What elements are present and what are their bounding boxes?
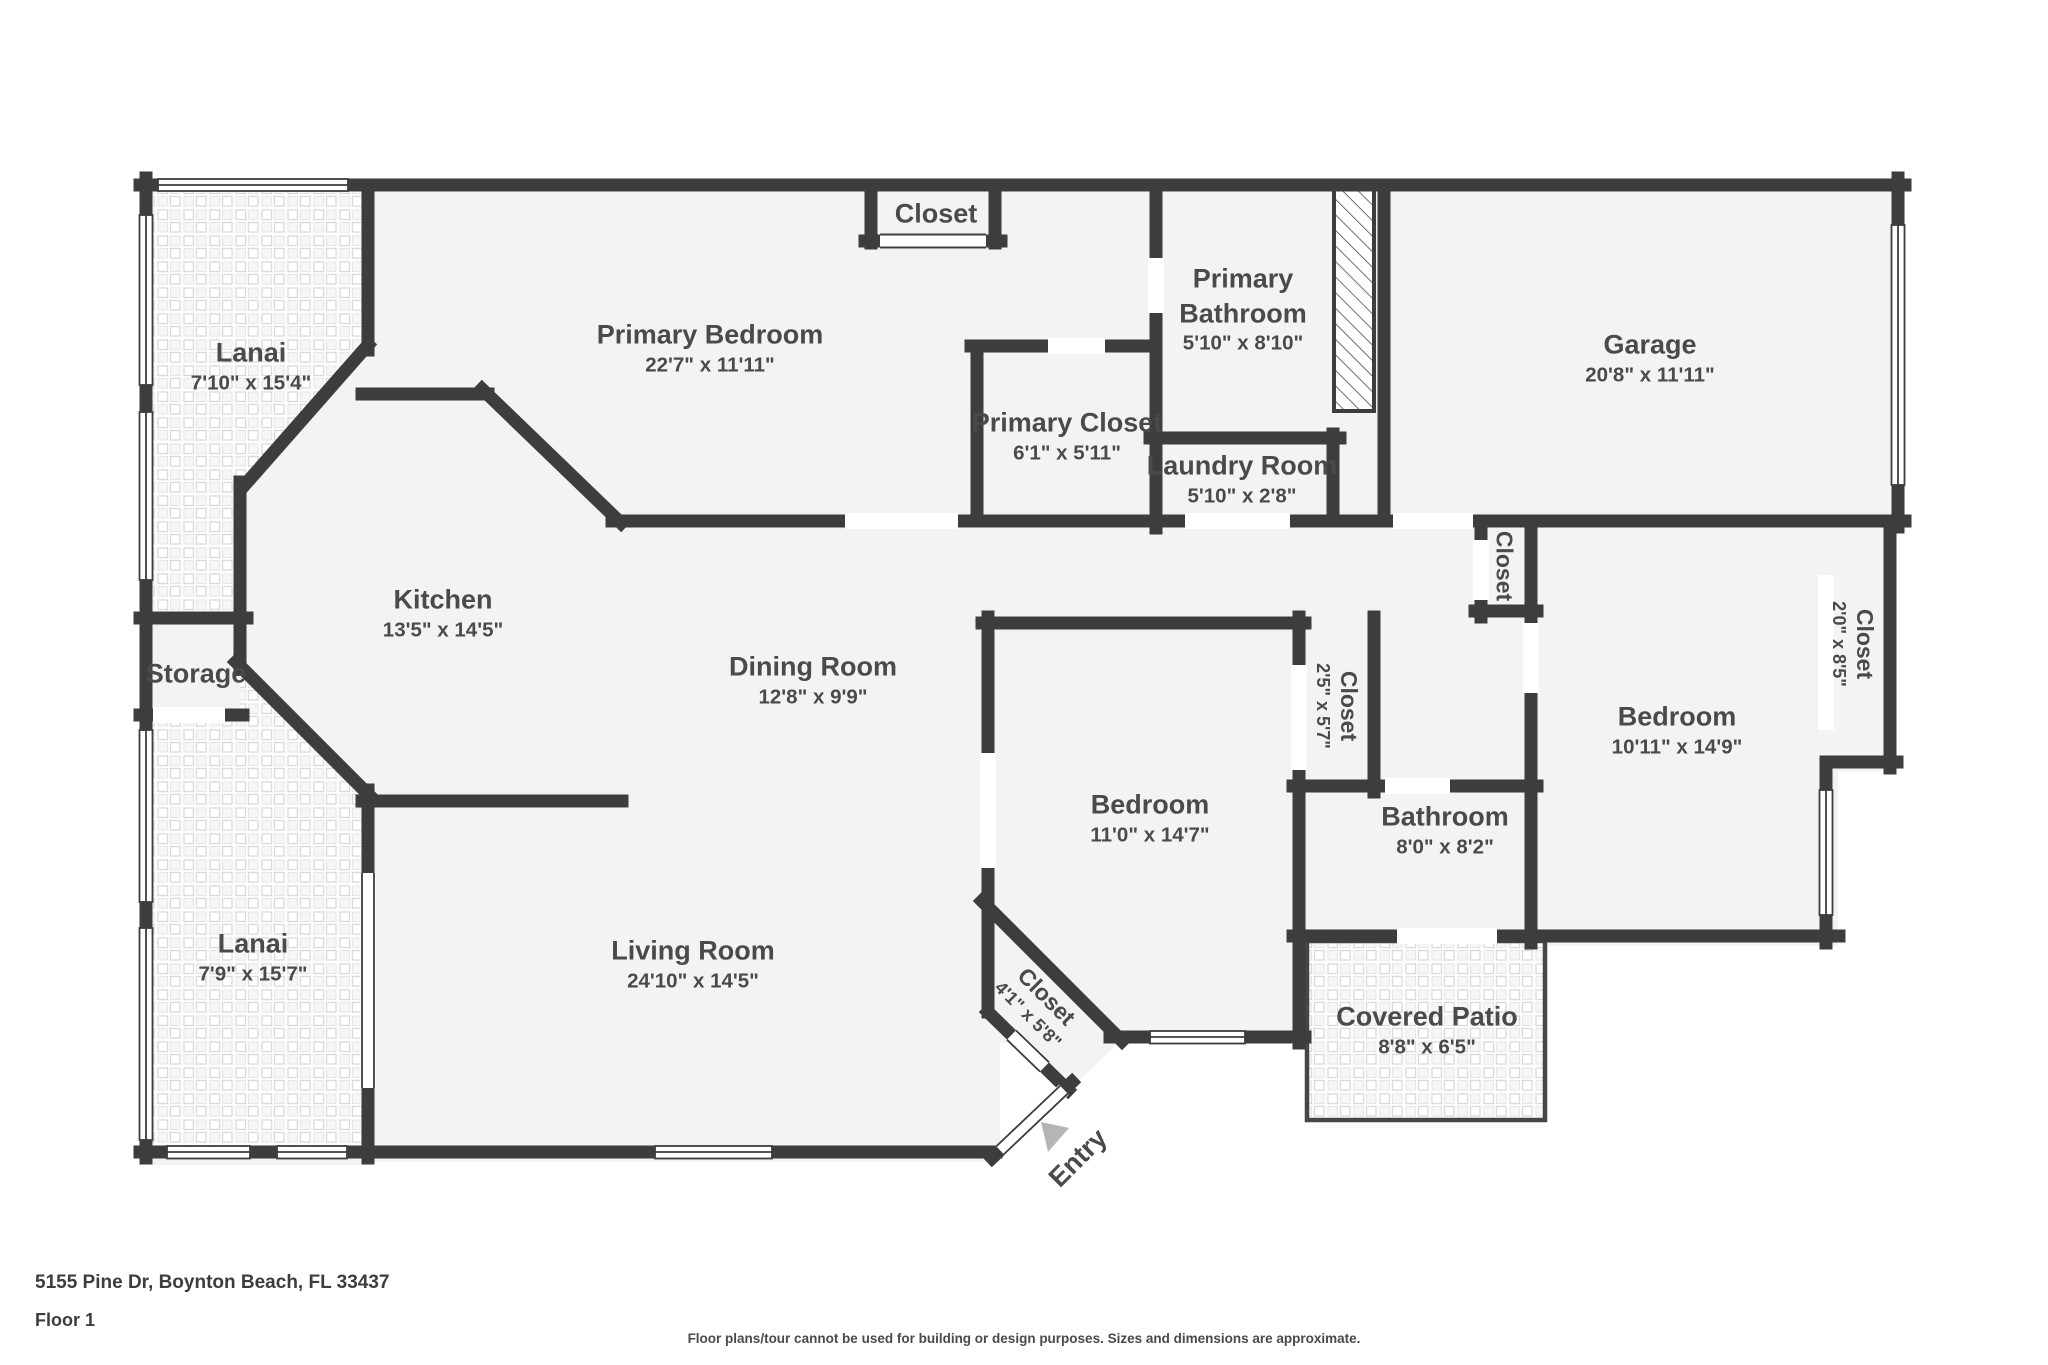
room-label-primary-closet: Primary Closet 6'1" x 5'11"	[972, 406, 1163, 467]
room-label-closet-right: Closet 2'0" x 8'5"	[1827, 601, 1879, 687]
room-label-lanai-top: Lanai 7'10" x 15'4"	[191, 336, 311, 397]
floor-label: Floor 1	[35, 1310, 95, 1331]
room-label-hall-closet: Closet	[1489, 531, 1518, 601]
room-label-covered-patio: Covered Patio 8'8" x 6'5"	[1336, 1000, 1518, 1061]
room-labels: Lanai 7'10" x 15'4" Primary Bedroom 22'7…	[0, 0, 2048, 1365]
room-label-kitchen: Kitchen 13'5" x 14'5"	[383, 583, 503, 644]
room-label-laundry: Laundry Room 5'10" x 2'8"	[1147, 449, 1338, 510]
room-label-dining: Dining Room 12'8" x 9'9"	[729, 650, 897, 711]
room-label-bedroom-right: Bedroom 10'11" x 14'9"	[1612, 700, 1743, 761]
floorplan-page: Lanai 7'10" x 15'4" Primary Bedroom 22'7…	[0, 0, 2048, 1365]
room-label-primary-bedroom: Primary Bedroom 22'7" x 11'11"	[597, 318, 824, 379]
room-label-closet-diagonal: Closet 4'1" x 5'8"	[989, 956, 1087, 1054]
room-label-garage: Garage 20'8" x 11'11"	[1585, 328, 1715, 389]
room-label-primary-bathroom: Primary Bathroom 5'10" x 8'10"	[1148, 261, 1338, 356]
room-label-bathroom: Bathroom 8'0" x 8'2"	[1381, 800, 1509, 861]
room-label-bedroom-middle: Bedroom 11'0" x 14'7"	[1090, 788, 1209, 849]
disclaimer-text: Floor plans/tour cannot be used for buil…	[0, 1331, 2048, 1346]
room-label-storage: Storage	[146, 657, 247, 692]
room-label-entry: Entry	[1041, 1121, 1114, 1194]
room-label-lanai-bottom: Lanai 7'9" x 15'7"	[199, 927, 308, 988]
room-label-living: Living Room 24'10" x 14'5"	[611, 934, 775, 995]
room-label-closet-small: Closet 2'5" x 5'7"	[1311, 663, 1363, 749]
room-label-closet-top: Closet	[895, 197, 978, 232]
address-text: 5155 Pine Dr, Boynton Beach, FL 33437	[35, 1272, 389, 1294]
